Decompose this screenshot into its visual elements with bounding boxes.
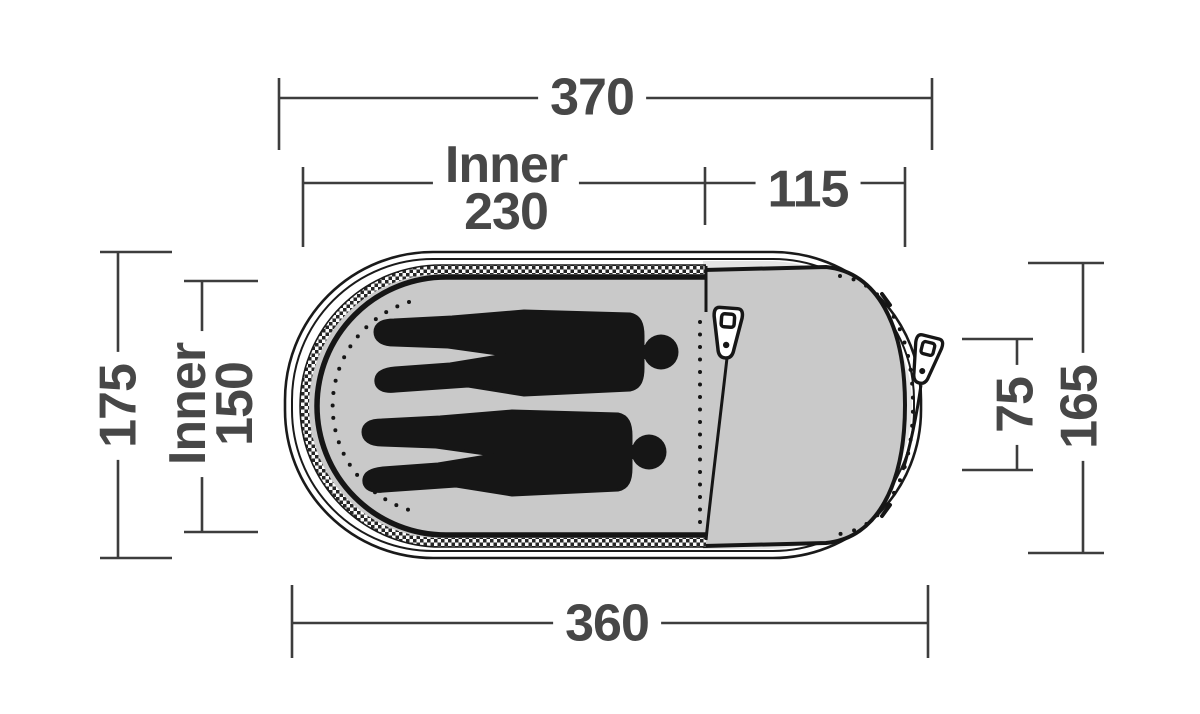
dim-label-inner-width: Inner 230 (433, 140, 579, 238)
dim-label-porch-width: 115 (756, 165, 861, 216)
dim-label-inner-width-value: 230 (445, 189, 567, 236)
dim-label-left-outer-depth: 175 (94, 352, 145, 460)
dim-label-top-total: 370 (538, 73, 646, 124)
tent-dimension-diagram: 370 Inner 230 115 175 Inner 150 75 165 3… (0, 0, 1200, 714)
dim-label-bottom-total: 360 (553, 599, 661, 650)
dim-label-right-outer-depth: 165 (1055, 353, 1106, 461)
dim-label-inner-depth: Inner 150 (163, 331, 261, 477)
dim-label-inner-depth-value: 150 (212, 343, 259, 465)
dim-label-porch-door-width: 75 (991, 365, 1042, 445)
dim-label-inner-depth-prefix: Inner (165, 343, 212, 465)
dim-label-inner-width-prefix: Inner (445, 142, 567, 189)
